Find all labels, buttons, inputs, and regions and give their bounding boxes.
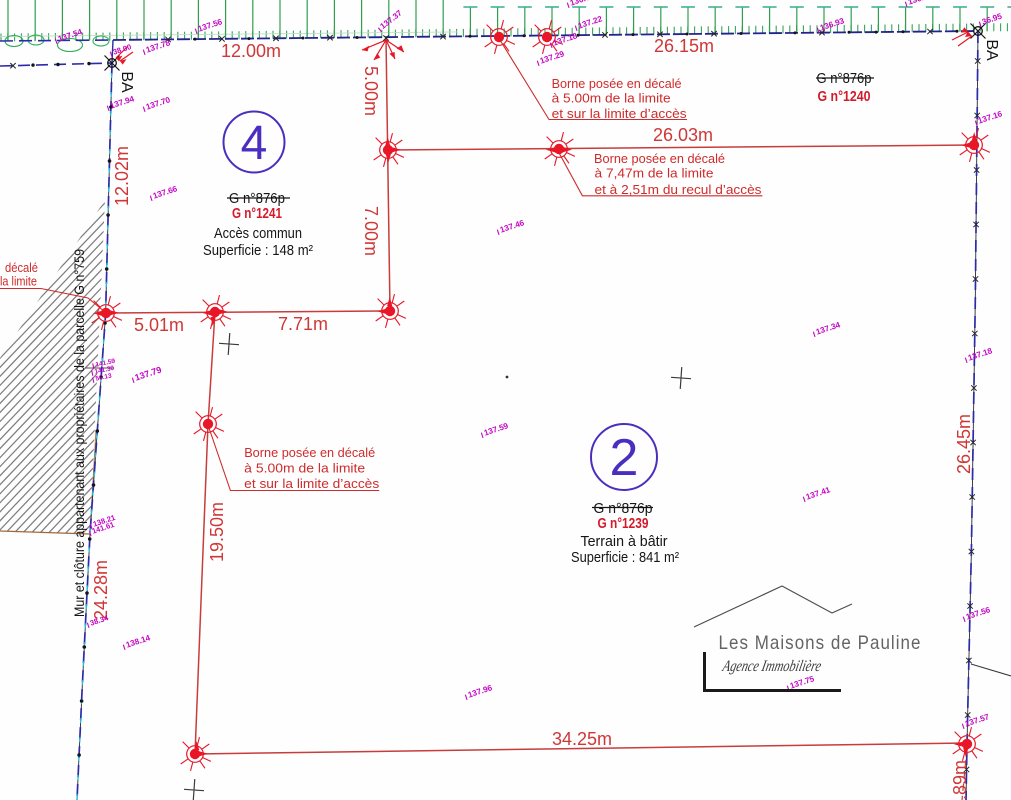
svg-text:à 7,47m de la limite: à 7,47m de la limite [595,165,714,180]
svg-text:et sur la limite d’accès: et sur la limite d’accès [244,476,380,491]
svg-text:Terrain à bâtir: Terrain à bâtir [581,533,668,550]
svg-text:G n°876p: G n°876p [229,191,285,207]
svg-text:à 5.00m de la limite: à 5.00m de la limite [552,91,671,106]
svg-text:Borne posée en décalé: Borne posée en décalé [244,445,375,460]
svg-text:5.01m: 5.01m [134,315,184,335]
svg-text:12.00m: 12.00m [221,41,281,61]
svg-text:7.00m: 7.00m [361,206,381,256]
svg-text:G n°1241: G n°1241 [232,206,282,222]
svg-text:G n°1239: G n°1239 [598,516,649,532]
svg-text:Borne posée en décalé: Borne posée en décalé [594,151,725,166]
svg-text:5.00m: 5.00m [361,66,381,116]
svg-text:Accès commun: Accès commun [214,225,302,242]
svg-text:34.25m: 34.25m [552,729,612,749]
svg-text:26.15m: 26.15m [654,36,714,56]
svg-text:G n°1240: G n°1240 [818,89,871,105]
svg-text:BA: BA [118,71,135,93]
svg-text:12.02m: 12.02m [112,146,132,206]
svg-text:la limite: la limite [0,274,37,289]
svg-text:G n°876p: G n°876p [594,501,653,517]
svg-text:BA: BA [983,39,1000,61]
svg-text:Superficie : 841 m²: Superficie : 841 m² [571,550,679,566]
svg-text:2: 2 [610,429,639,487]
svg-text:26.45m: 26.45m [954,414,974,474]
svg-text:Mur et clôture appartenant aux: Mur et clôture appartenant aux propriéta… [72,249,87,617]
svg-text:et sur la limite d’accès: et sur la limite d’accès [552,106,688,121]
svg-text:Les Maisons de Pauline: Les Maisons de Pauline [719,632,922,654]
svg-text:Borne posée en décalé: Borne posée en décalé [552,76,682,91]
svg-text:Agence Immobilière: Agence Immobilière [720,658,822,675]
svg-text:Superficie : 148 m²: Superficie : 148 m² [203,243,313,259]
svg-text:4.89m: 4.89m [950,760,970,800]
svg-text:à 5.00m de la limite: à 5.00m de la limite [244,461,365,476]
svg-text:G n°876p: G n°876p [817,71,872,87]
svg-text:19.50m: 19.50m [207,502,227,562]
svg-text:26.03m: 26.03m [653,125,713,145]
svg-text:7.71m: 7.71m [278,314,328,334]
svg-text:4: 4 [241,117,268,170]
svg-text:24.28m: 24.28m [91,560,111,620]
svg-text:et à 2,51m du recul d’accès: et à 2,51m du recul d’accès [595,182,763,197]
